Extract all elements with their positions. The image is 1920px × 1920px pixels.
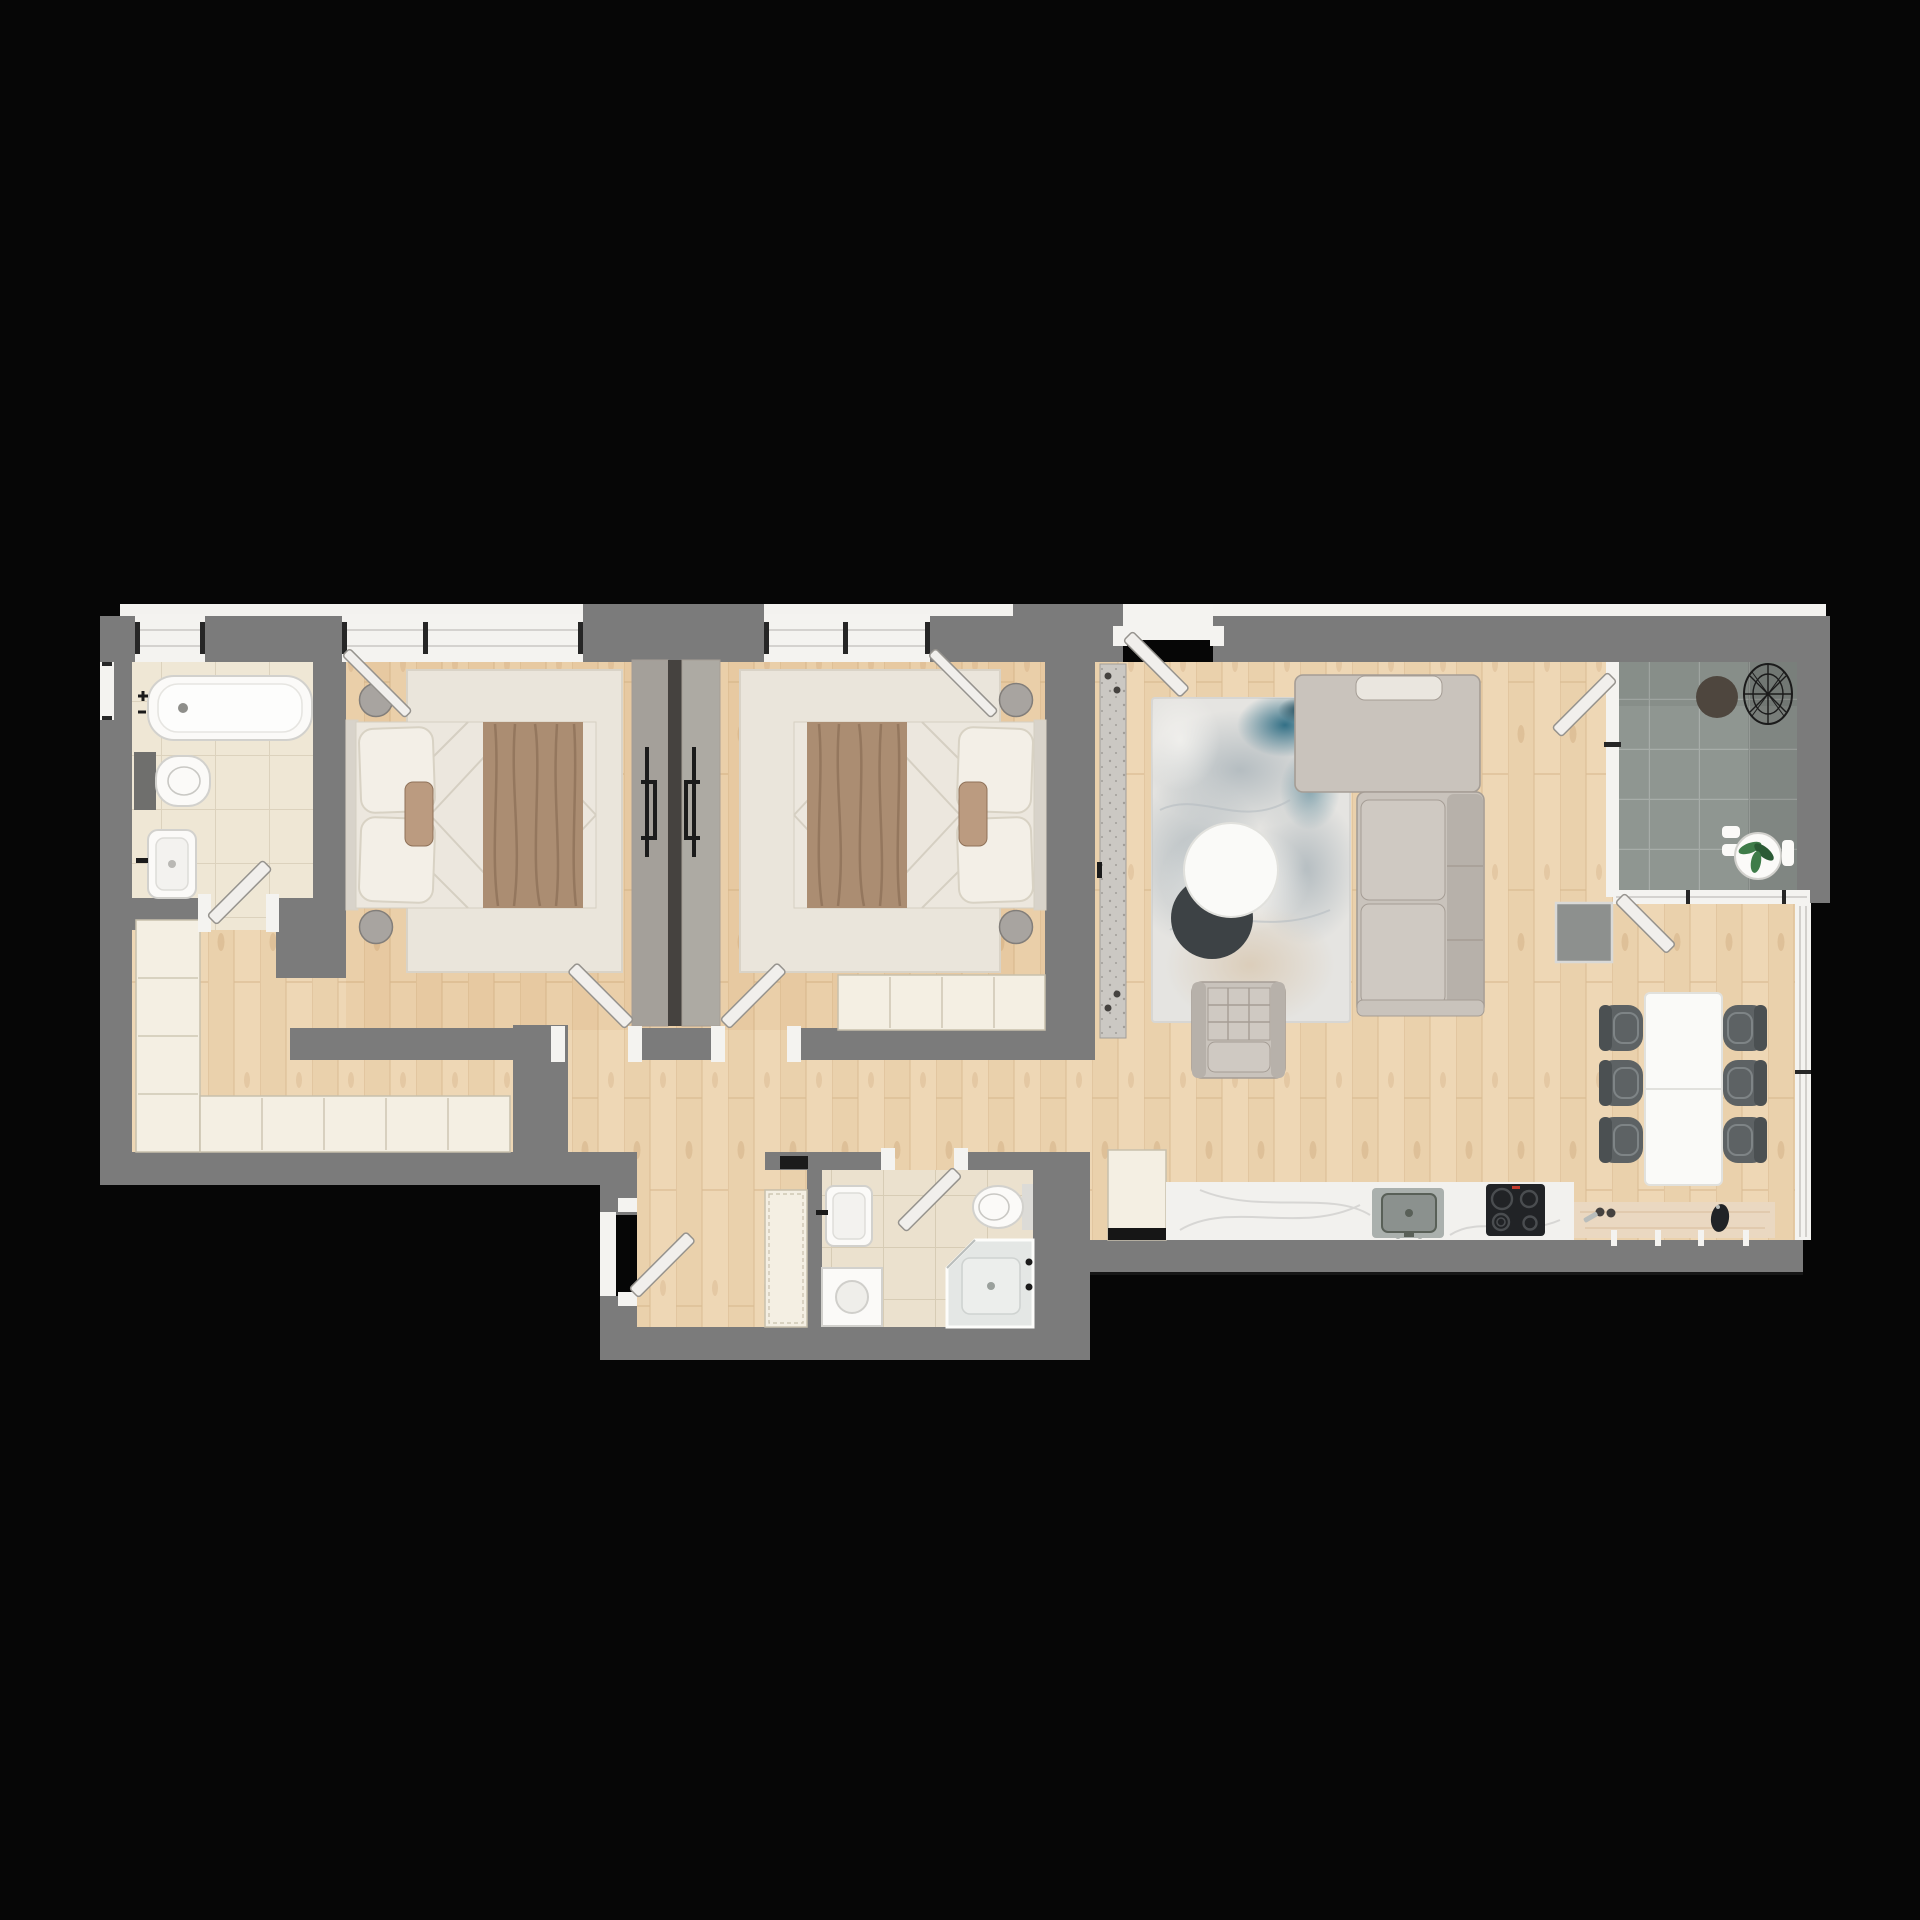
- basin-faucet-icon: [136, 858, 148, 863]
- dining-chair: [1599, 1060, 1643, 1106]
- round-stool: [360, 911, 393, 944]
- balcony-doormat: [1556, 903, 1612, 962]
- bathtub: [138, 676, 312, 740]
- washing-machine: [822, 1268, 882, 1326]
- wardrobe-handle-icon: [645, 747, 649, 857]
- induction-cooktop: [1486, 1184, 1545, 1236]
- throw-blanket: [483, 722, 583, 908]
- round-stool: [1000, 684, 1033, 717]
- floor-plan-image: [0, 0, 1920, 1920]
- accent-pillow: [405, 782, 433, 846]
- corridor-cabinet: [765, 1190, 807, 1327]
- throw-blanket: [807, 722, 907, 908]
- round-coffee-table: [1184, 823, 1278, 917]
- sofa-armrest: [1357, 1000, 1484, 1016]
- entry-runner: [1097, 664, 1126, 1038]
- wardrobes: [632, 660, 720, 1026]
- kitchen-sink: [1372, 1188, 1444, 1239]
- faucet-icon: [1404, 1232, 1414, 1237]
- wall-vent: [780, 1156, 808, 1169]
- window-left-wall: [100, 662, 114, 720]
- dining-chair: [1599, 1117, 1643, 1163]
- bedroom2-dresser: [838, 975, 1045, 1030]
- accent-pillow: [959, 782, 987, 846]
- floor-plan-screenshot: [0, 0, 1920, 1920]
- window-bedroom2: [764, 614, 930, 662]
- wardrobe-bedroom2: [682, 660, 720, 1026]
- toilet2: [973, 1184, 1033, 1230]
- window-bathroom1: [135, 614, 205, 662]
- wire-chair: [1744, 664, 1792, 724]
- corner-shower: [947, 1240, 1033, 1327]
- dining-chair: [1723, 1117, 1767, 1163]
- dining-chair: [1723, 1060, 1767, 1106]
- window-wall-dining-right: [1795, 903, 1811, 1240]
- sofa-pillow: [1356, 676, 1442, 700]
- hallway-cabinet-column: [136, 920, 200, 1152]
- fridge-cabinet: [1108, 1150, 1166, 1240]
- window-bedroom1: [342, 614, 583, 662]
- bed-bedroom1: [346, 720, 596, 910]
- bed-bedroom2: [794, 720, 1046, 910]
- basin-faucet-icon: [816, 1210, 828, 1215]
- wardrobe-handle-icon: [692, 747, 696, 857]
- round-outdoor-rug: [1696, 676, 1738, 718]
- dining-chair: [1723, 1005, 1767, 1051]
- dining-chair: [1599, 1005, 1643, 1051]
- cooktop-indicator: [1512, 1186, 1520, 1189]
- hallway-cabinet-row: [200, 1096, 510, 1152]
- sofa-seat-cushion: [1361, 800, 1445, 900]
- wall-hung-toilet: [134, 752, 210, 810]
- wardrobe-bedroom1: [632, 660, 668, 1026]
- lounge-armchair: [1192, 982, 1285, 1078]
- round-stool: [1000, 911, 1033, 944]
- sofa-back-cushions: [1447, 794, 1483, 1012]
- wardrobe-divider: [668, 660, 682, 1026]
- sofa-seat-cushion: [1361, 904, 1445, 1004]
- shaker-icon: [1607, 1209, 1616, 1218]
